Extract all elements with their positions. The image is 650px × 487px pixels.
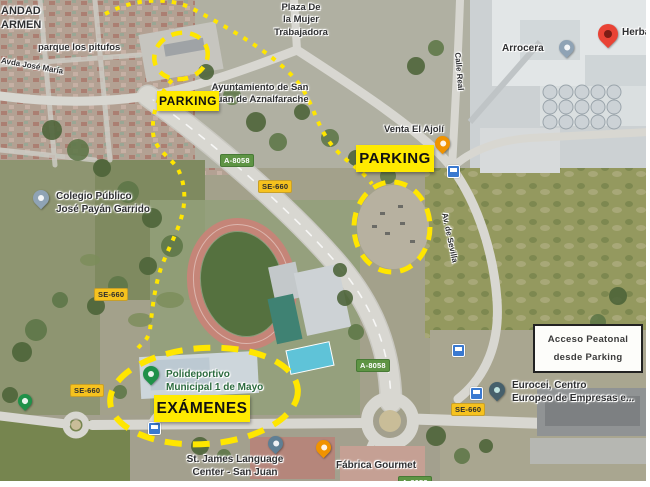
acceso-peatonal-box: Acceso Peatonal desde Parking [533,324,643,373]
road-shield-a8058: A-8058 [356,359,390,372]
parking-tag-right: PARKING [356,145,434,172]
bus-stop-icon[interactable] [148,422,161,435]
parking-tag-top: PARKING [157,91,219,111]
pin-dot [562,43,570,51]
acceso-line-2: desde Parking [554,352,623,363]
colegio-label[interactable]: Colegio PúblicoJosé Payán Garrido [56,190,150,216]
st-james-label[interactable]: St. James LanguageCenter - San Juan [175,453,295,479]
road-shield-se660: SE-660 [451,403,485,416]
fabrica-gourmet-label[interactable]: Fábrica Gourmet [336,459,416,472]
polideportivo-label[interactable]: PolideportivoMunicipal 1 de Mayo [166,368,263,394]
parque-los-pitufos-label[interactable]: parque los pitufos [38,42,120,54]
pin-dot [21,397,29,405]
pin-dot [492,385,501,394]
road-shield-se660: SE-660 [70,384,104,397]
road-shield-se660: SE-660 [258,180,292,193]
examenes-tag: EXÁMENES [154,395,250,422]
road-shield-se660: SE-660 [94,288,128,301]
bus-stop-icon[interactable] [447,165,460,178]
acceso-line-1: Acceso Peatonal [548,334,629,345]
pin-dot [319,443,327,451]
bottom-margin [0,481,650,487]
pin-dot [602,28,613,39]
pin-dot [146,369,155,378]
road-shield-a8058: A-8058 [220,154,254,167]
bus-stop-icon[interactable] [452,344,465,357]
pin-dot [438,139,446,147]
bus-stop-icon[interactable] [470,387,483,400]
pin-dot [36,193,45,202]
map-screenshot: ANDADARMEN parque los pitufos Avda José … [0,0,650,487]
arrocera-label[interactable]: Arrocera [502,42,544,55]
venta-el-ajoli-label[interactable]: Venta El Ajolí [384,124,444,136]
plaza-mujer-trabajadora-label[interactable]: Plaza Dela MujerTrabajadora [258,2,344,39]
pin-dot [271,439,279,447]
right-margin [646,0,650,487]
satellite-map[interactable] [0,0,650,487]
eurocei-label[interactable]: Eurocei, CentroEuropeo de Empresas e... [512,379,634,405]
hermandad-label[interactable]: ANDADARMEN [1,4,41,33]
